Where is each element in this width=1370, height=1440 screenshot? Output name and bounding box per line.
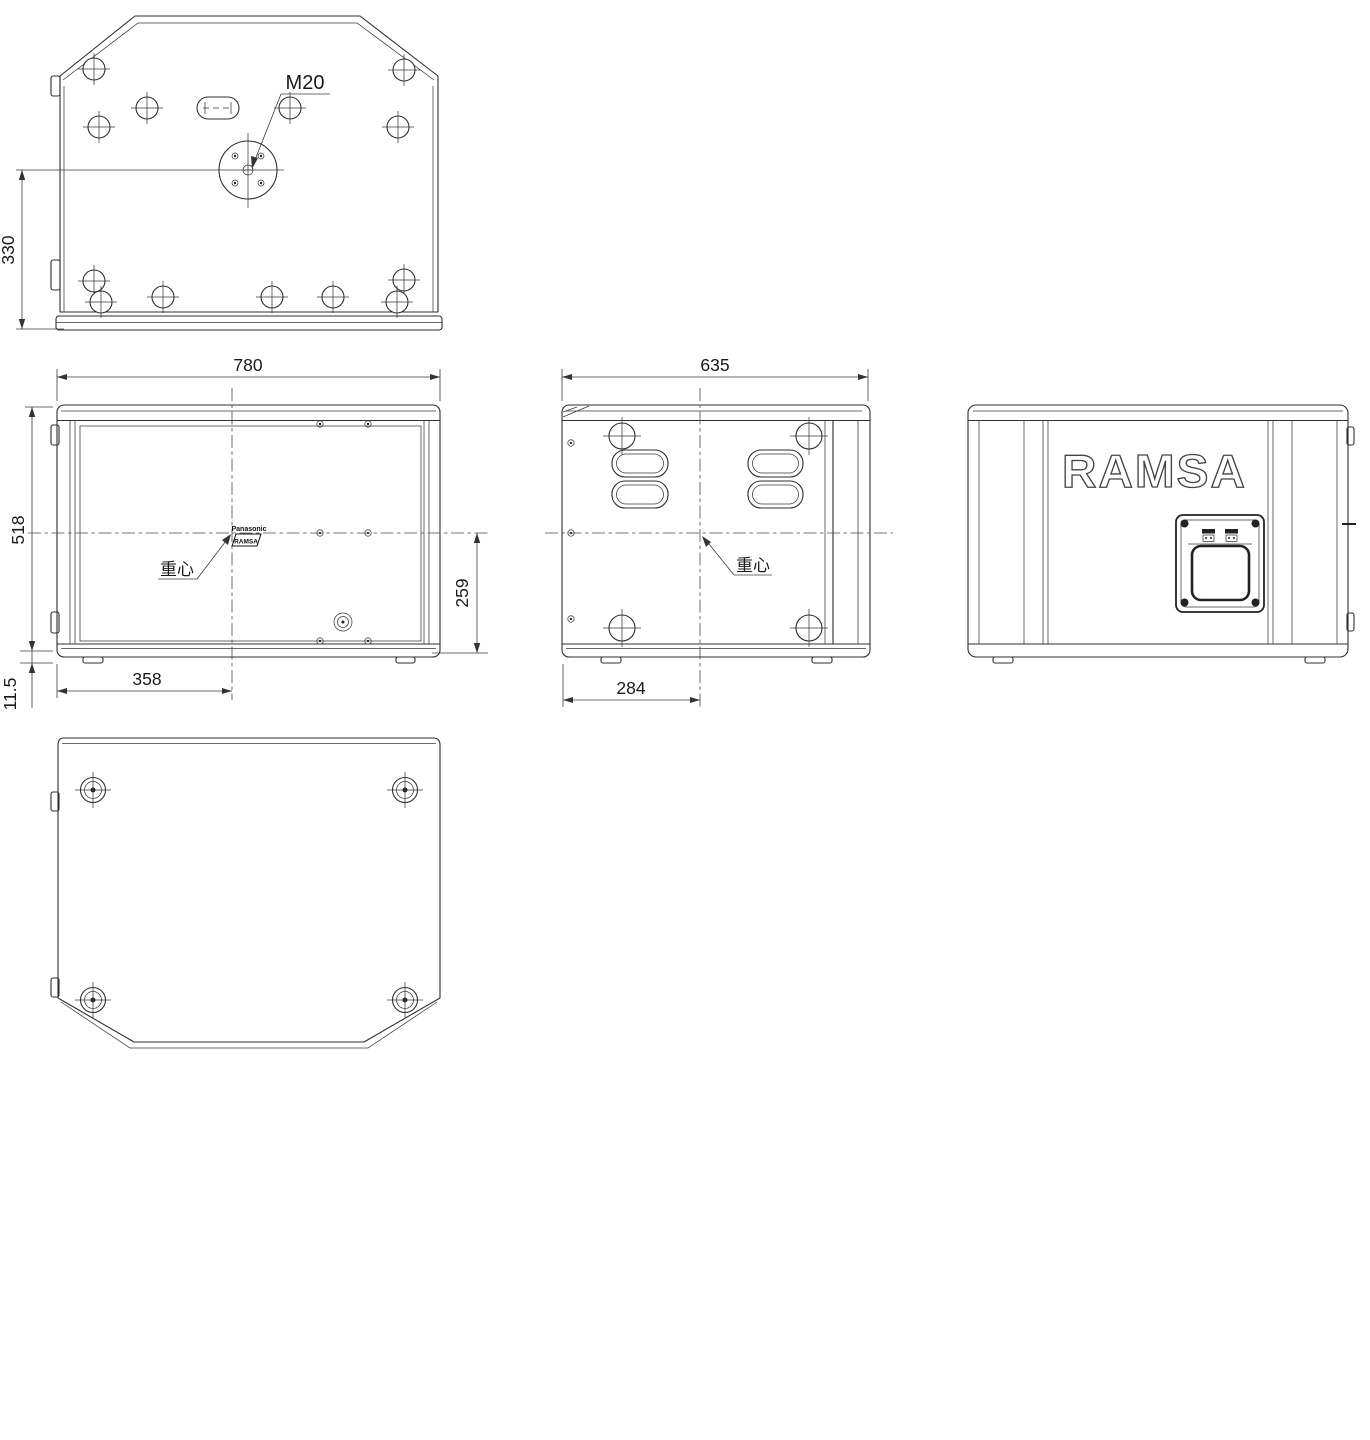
mini-brand-plate: Panasonic RAMSA — [231, 526, 266, 546]
panel-screw — [1181, 520, 1189, 528]
speakon-connector — [1225, 529, 1238, 542]
mini-brand-top-text: Panasonic — [231, 526, 266, 533]
side-tab — [51, 260, 60, 290]
front-view: RAMSA — [968, 405, 1356, 663]
bottom-view — [51, 738, 440, 1048]
dim-330-text: 330 — [0, 235, 18, 264]
bottom-feet — [75, 772, 423, 1018]
dim-635-text: 635 — [700, 355, 729, 375]
dimension-drawing: M20 330 — [0, 0, 1370, 1440]
dim-11-5-text: 11.5 — [0, 678, 20, 711]
dim-358-text: 358 — [132, 669, 161, 689]
foot — [812, 657, 832, 663]
cg-label-side: 重心 — [160, 560, 194, 579]
top-view-bottom-lip — [56, 316, 442, 330]
dim-284-text: 284 — [616, 678, 645, 698]
side-view: Panasonic RAMSA 重心 780 — [0, 355, 490, 710]
dim-11-5: 11.5 — [0, 663, 35, 710]
dim-518-text: 518 — [8, 515, 28, 544]
panel-screw — [1181, 599, 1189, 607]
cg-label-rear: 重心 — [736, 556, 770, 575]
rear-edge-screws — [568, 440, 574, 622]
side-vent-plug — [334, 613, 352, 631]
dim-635: 635 — [562, 355, 868, 401]
rear-view: 重心 635 284 — [545, 355, 893, 708]
side-tab — [51, 76, 60, 96]
foot — [396, 657, 415, 663]
handle-cutouts — [612, 450, 803, 508]
dim-780: 780 — [57, 355, 440, 401]
bottom-view-outline — [58, 738, 440, 1042]
dim-284: 284 — [563, 664, 700, 707]
foot — [1305, 657, 1325, 663]
top-view-chamfer-inner-line — [63, 23, 434, 80]
top-slot — [197, 97, 239, 119]
foot — [601, 657, 621, 663]
pole-mount-m20 — [219, 133, 277, 208]
front-view-outline — [968, 405, 1348, 657]
speakon-connector — [1202, 529, 1215, 542]
cg-callout-rear: 重心 — [702, 536, 772, 575]
ramsa-logo: RAMSA — [1062, 445, 1247, 497]
foot — [993, 657, 1013, 663]
bottom-lip — [61, 1002, 437, 1048]
dim-358: 358 — [57, 664, 232, 698]
label-m20: M20 — [286, 72, 325, 94]
dim-518: 518 — [8, 407, 53, 708]
panel-recess — [1192, 546, 1249, 600]
dim-780-text: 780 — [233, 355, 262, 375]
side-panel-screws — [317, 421, 371, 644]
connector-panel — [1176, 515, 1264, 612]
cg-callout-side: 重心 — [158, 534, 231, 579]
foot — [83, 657, 103, 663]
side-tab — [51, 612, 59, 633]
panel-screw — [1252, 520, 1260, 528]
side-tab — [51, 425, 59, 445]
dim-259-text: 259 — [452, 578, 472, 607]
rear-top-chamfer — [563, 406, 589, 417]
rear-view-outline — [562, 405, 870, 657]
top-view: M20 330 — [0, 16, 442, 330]
panel-screw — [1252, 599, 1260, 607]
rear-corner-holes — [603, 417, 828, 647]
drawing-canvas: M20 330 — [0, 0, 1370, 1440]
mini-brand-bottom-text: RAMSA — [234, 539, 258, 546]
